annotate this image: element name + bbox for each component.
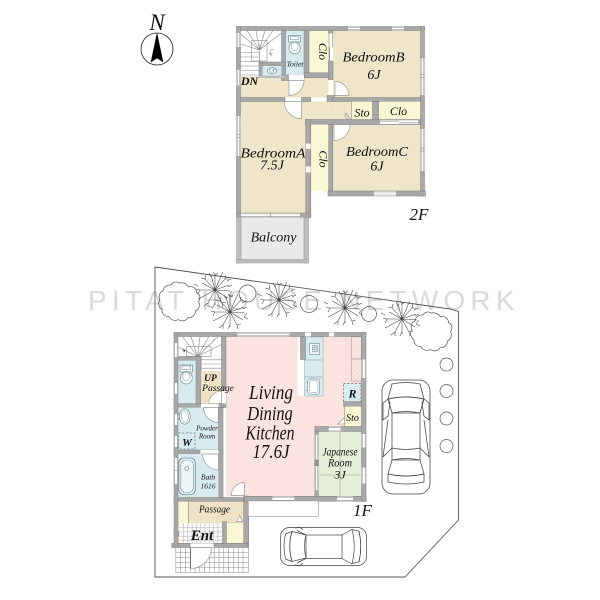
svg-text:PITAT HOUSE NETWORK: PITAT HOUSE NETWORK (88, 285, 520, 316)
svg-text:Balcony: Balcony (251, 231, 298, 246)
svg-text:6J: 6J (367, 68, 381, 83)
svg-text:2F: 2F (410, 205, 430, 224)
svg-text:7.5J: 7.5J (260, 159, 285, 174)
svg-text:3J: 3J (333, 468, 346, 482)
svg-text:Clo: Clo (316, 43, 330, 60)
svg-text:N: N (148, 10, 166, 35)
svg-text:1616: 1616 (201, 482, 216, 491)
svg-text:Passage: Passage (201, 384, 234, 394)
svg-text:1F: 1F (353, 501, 373, 520)
svg-text:Clo: Clo (317, 150, 331, 167)
svg-text:Sto: Sto (354, 106, 369, 120)
svg-text:17.6J: 17.6J (253, 441, 291, 463)
svg-text:Passage: Passage (198, 504, 230, 516)
svg-text:BedroomC: BedroomC (346, 145, 409, 160)
svg-text:Sto: Sto (346, 413, 359, 424)
svg-text:Room: Room (198, 433, 215, 441)
svg-text:BedroomB: BedroomB (343, 51, 405, 66)
svg-text:Powder: Powder (195, 425, 218, 433)
svg-text:Bath: Bath (201, 473, 215, 482)
svg-text:Clo: Clo (390, 104, 407, 118)
svg-text:6J: 6J (370, 160, 384, 175)
svg-text:W: W (182, 437, 193, 449)
svg-text:Ent: Ent (190, 528, 214, 544)
svg-text:R: R (347, 387, 356, 401)
svg-text:DN: DN (240, 74, 260, 88)
svg-text:UP: UP (204, 374, 217, 384)
svg-text:Toilet: Toilet (287, 60, 305, 69)
svg-text:Living: Living (248, 382, 293, 404)
